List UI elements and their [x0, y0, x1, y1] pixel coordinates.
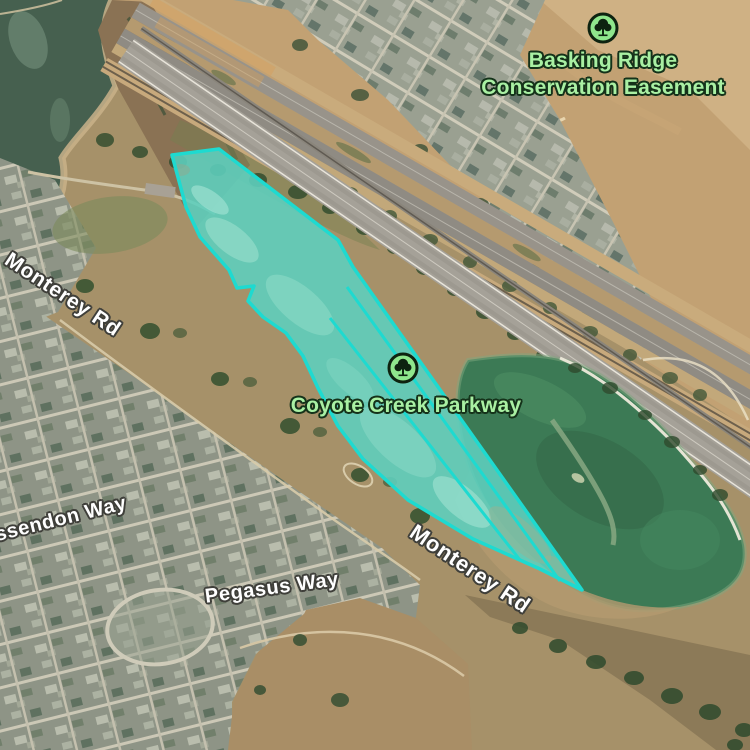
- poi-label-line2: Conservation Easement: [443, 74, 750, 101]
- map-canvas[interactable]: Basking Ridge Conservation Easement Coyo…: [0, 0, 750, 750]
- poi-label-basking-ridge[interactable]: Basking Ridge Conservation Easement: [443, 47, 750, 101]
- poi-label-line1: Basking Ridge: [443, 47, 750, 74]
- tree-icon[interactable]: [586, 11, 620, 45]
- poi-label-coyote-creek-parkway[interactable]: Coyote Creek Parkway: [256, 392, 556, 419]
- satellite-imagery: [0, 0, 750, 750]
- tree-icon[interactable]: [386, 351, 420, 385]
